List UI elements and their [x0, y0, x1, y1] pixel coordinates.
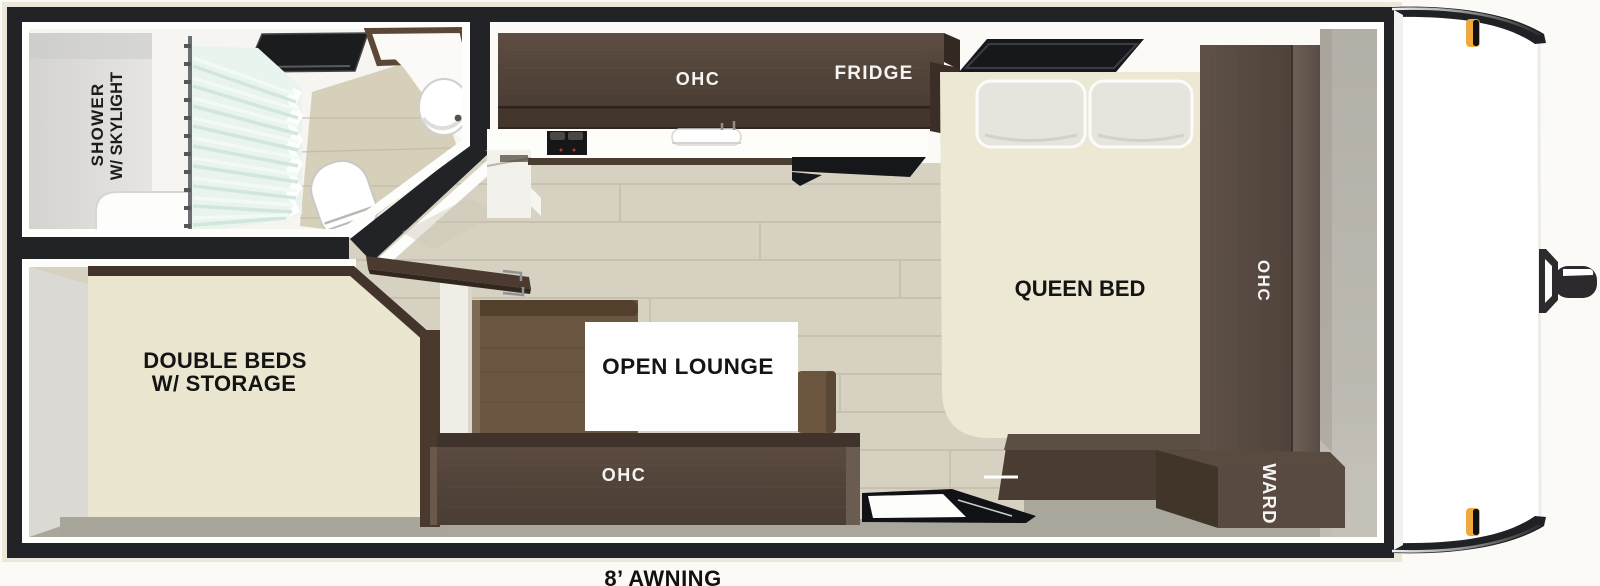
svg-text:W/ STORAGE: W/ STORAGE: [152, 371, 296, 396]
svg-text:DOUBLE BEDS: DOUBLE BEDS: [143, 348, 306, 373]
svg-text:FRIDGE: FRIDGE: [835, 63, 914, 84]
svg-text:OPEN LOUNGE: OPEN LOUNGE: [602, 354, 774, 379]
svg-text:OHC: OHC: [1254, 260, 1273, 302]
svg-text:OHC: OHC: [676, 69, 721, 89]
svg-text:SHOWER: SHOWER: [88, 83, 107, 167]
svg-text:8’ AWNING: 8’ AWNING: [604, 566, 721, 586]
svg-text:QUEEN BED: QUEEN BED: [1015, 276, 1146, 301]
svg-text:OHC: OHC: [602, 465, 647, 485]
svg-text:W/ SKYLIGHT: W/ SKYLIGHT: [108, 72, 126, 180]
svg-text:WARD: WARD: [1259, 463, 1280, 524]
